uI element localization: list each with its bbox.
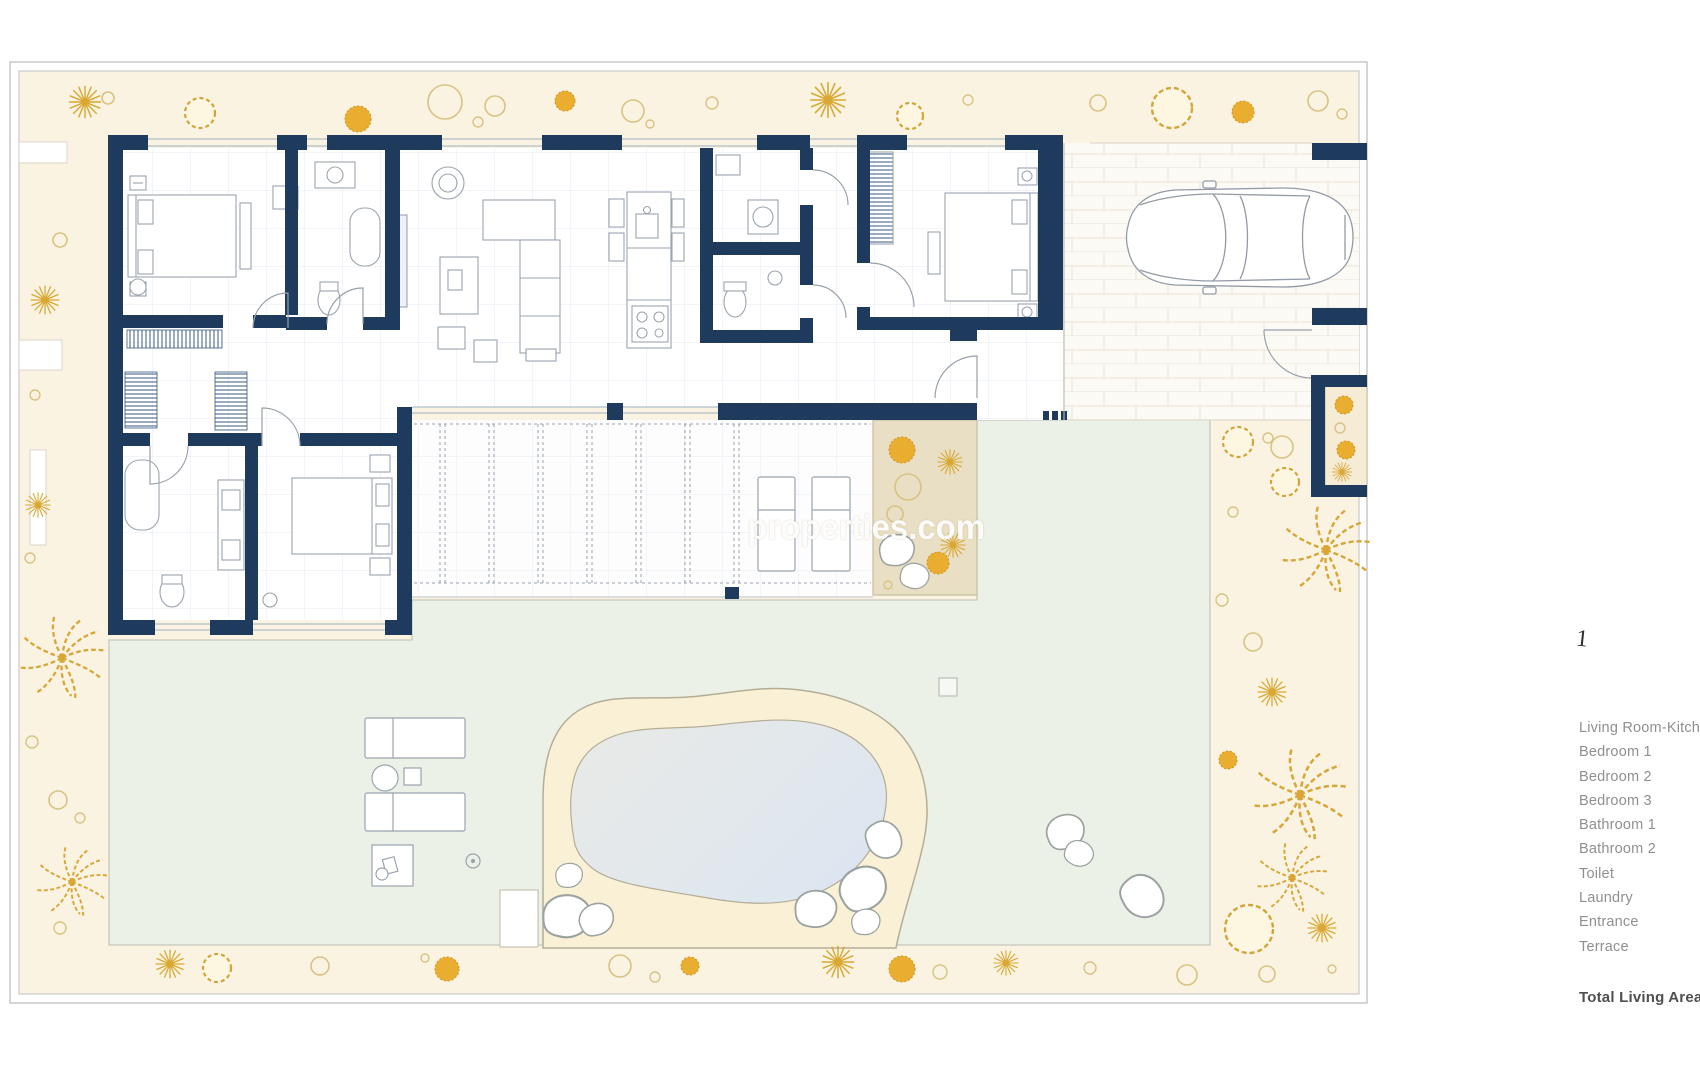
- pool-water: [571, 720, 887, 903]
- scale-mark: 1: [1575, 625, 1590, 653]
- floor-plan: [0, 0, 1380, 1080]
- rock: [852, 909, 880, 934]
- legend-item: Bedroom 2: [1579, 765, 1700, 789]
- legend-total-label: Total Living Area: [1579, 989, 1700, 1006]
- legend-item: Bedroom 3: [1579, 789, 1700, 813]
- legend-item: Terrace: [1579, 935, 1700, 959]
- plant-star-icon: [937, 449, 962, 474]
- lawn-drain: [939, 678, 957, 696]
- planter-box: [1311, 375, 1367, 497]
- plant-star-icon: [940, 532, 965, 557]
- garden-pad: [500, 890, 538, 947]
- legend-item: Entrance: [1579, 910, 1700, 934]
- rock: [880, 535, 915, 566]
- planting-bed: [873, 420, 977, 595]
- legend-item: Toilet: [1579, 862, 1700, 886]
- plant-star-icon: [1332, 462, 1352, 482]
- room-legend: Living Room-Kitchen Bedroom 1 Bedroom 2 …: [1579, 716, 1700, 959]
- legend-item: Bathroom 2: [1579, 837, 1700, 861]
- terrace-pillar: [725, 587, 739, 599]
- legend-item: Bedroom 1: [1579, 740, 1700, 764]
- legend-item: Laundry: [1579, 886, 1700, 910]
- legend-item: Living Room-Kitchen: [1579, 716, 1700, 740]
- car: [1127, 181, 1354, 294]
- rock: [556, 863, 583, 887]
- terrace-deck: [412, 420, 873, 599]
- legend-item: Bathroom 1: [1579, 813, 1700, 837]
